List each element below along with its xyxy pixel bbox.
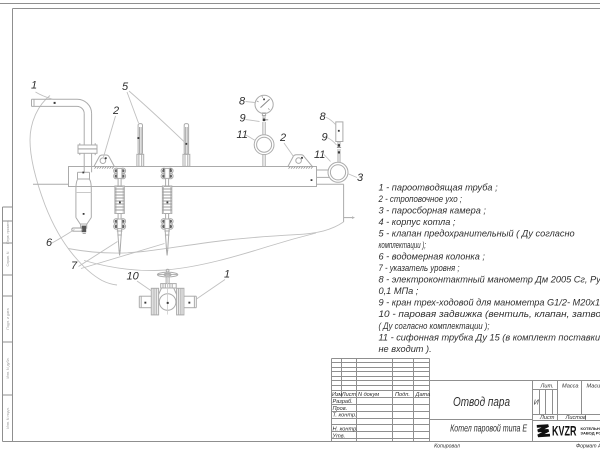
svg-text:9: 9 [240, 113, 246, 125]
svg-text:N докум: N докум [358, 392, 379, 398]
svg-text:6: 6 [46, 237, 53, 249]
svg-text:Отвод пара: Отвод пара [453, 394, 510, 409]
svg-text:( Ду согласно комплектации );: ( Ду согласно комплектации ); [379, 321, 490, 331]
svg-text:3 - паросборная камера ;: 3 - паросборная камера ; [379, 206, 487, 216]
svg-text:Инв. N дубл.: Инв. N дубл. [6, 358, 10, 379]
svg-text:Дата: Дата [415, 392, 431, 398]
svg-text:4 - корпус котла ;: 4 - корпус котла ; [379, 217, 456, 227]
svg-text:1 - пароотводящая труба ;: 1 - пароотводящая труба ; [379, 183, 499, 193]
svg-text:комплектации );: комплектации ); [379, 240, 427, 250]
svg-text:Пров.: Пров. [333, 406, 348, 412]
svg-text:2 - строповочное ухо ;: 2 - строповочное ухо ; [378, 194, 463, 204]
svg-text:Утв.: Утв. [332, 433, 346, 439]
svg-text:11: 11 [314, 149, 325, 161]
svg-text:8: 8 [320, 111, 327, 123]
svg-text:Перв. примен.: Перв. примен. [6, 220, 10, 244]
svg-text:5: 5 [122, 81, 129, 93]
svg-text:2: 2 [112, 105, 119, 117]
svg-text:10: 10 [127, 271, 140, 283]
svg-text:Лист: Лист [341, 392, 357, 398]
svg-text:не входит ).: не входит ). [379, 344, 432, 354]
svg-text:Лит.: Лит. [540, 384, 554, 390]
svg-text:Подп. и дата: Подп. и дата [6, 308, 10, 329]
svg-text:Котел паровой типа Е: Котел паровой типа Е [450, 424, 527, 435]
svg-text:Листов: Листов [565, 415, 586, 421]
svg-text:Подп.: Подп. [395, 392, 410, 398]
svg-text:7 - указатель уровня ;: 7 - указатель уровня ; [379, 263, 460, 273]
svg-text:6 - водомерная колонка ;: 6 - водомерная колонка ; [379, 252, 486, 262]
svg-text:2: 2 [279, 132, 286, 144]
svg-text:Инв. N подл.: Инв. N подл. [6, 407, 10, 428]
svg-text:9: 9 [322, 132, 328, 144]
svg-text:Разраб.: Разраб. [333, 399, 353, 405]
svg-text:1: 1 [224, 269, 230, 281]
svg-text:ЗАВОД РОС: ЗАВОД РОС [581, 430, 600, 435]
svg-text:Справ. N: Справ. N [6, 251, 10, 266]
svg-text:KVZR: KVZR [552, 424, 577, 439]
svg-text:Формат А3: Формат А3 [576, 443, 600, 449]
svg-text:11 - сифонная трубка Ду 15 (в: 11 - сифонная трубка Ду 15 (в комплект п… [379, 332, 600, 342]
svg-text:Н. контр.: Н. контр. [333, 427, 358, 433]
svg-text:Лист: Лист [539, 415, 555, 421]
svg-text:Масшта: Масшта [587, 384, 600, 390]
svg-text:5 - клапан предохранительный: 5 - клапан предохранительный ( Ду соглас… [379, 229, 575, 239]
svg-text:1: 1 [31, 80, 37, 92]
svg-text:8 - электроконтактный манометр: 8 - электроконтактный манометр Дм 2005 С… [379, 275, 600, 285]
svg-text:8: 8 [239, 96, 246, 108]
svg-text:11: 11 [237, 129, 248, 141]
svg-text:0,1 МПа ;: 0,1 МПа ; [379, 286, 419, 296]
svg-text:9 - кран трех-ходовой для ман: 9 - кран трех-ходовой для манометра G1/2… [379, 298, 600, 308]
svg-text:7: 7 [71, 260, 78, 272]
svg-text:10 - паровая задвижка (венти: 10 - паровая задвижка (вентиль, клапан, … [379, 309, 600, 319]
svg-text:3: 3 [357, 172, 364, 184]
svg-text:Т. контр.: Т. контр. [333, 413, 357, 419]
svg-text:Копировал: Копировал [434, 443, 460, 449]
svg-text:Масса: Масса [562, 384, 579, 390]
